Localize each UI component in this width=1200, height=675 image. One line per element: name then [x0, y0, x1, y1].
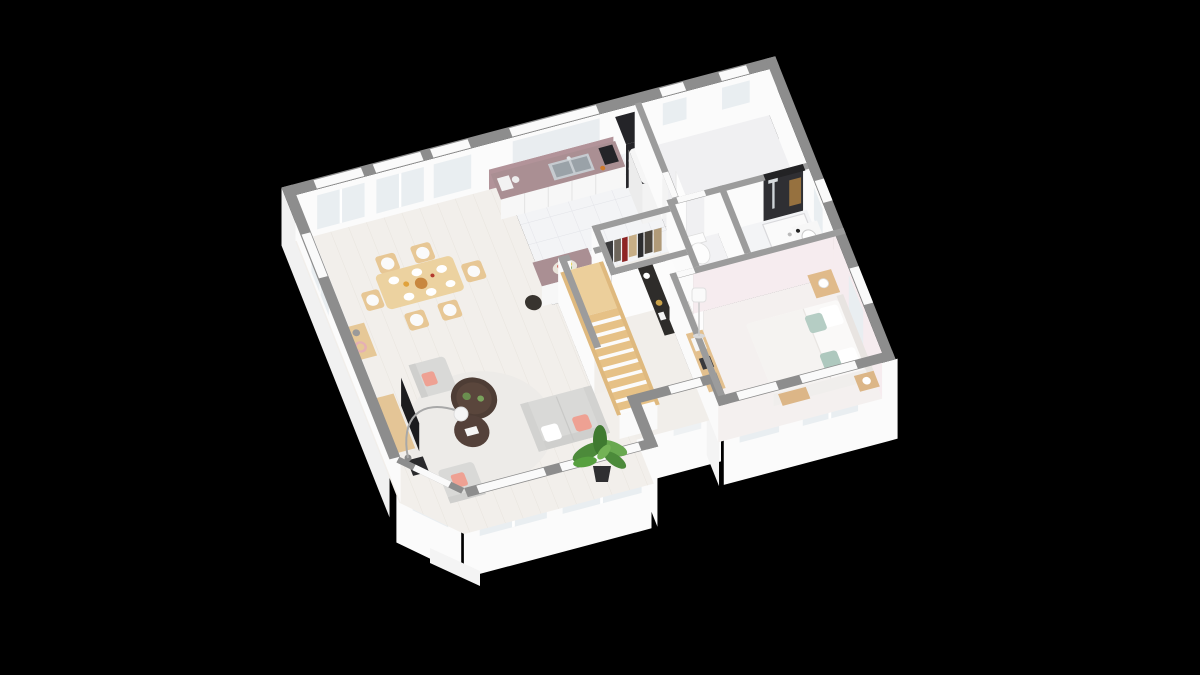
- plant-pot: [593, 466, 611, 482]
- shower-bar: [772, 178, 774, 209]
- floor-plan-render: [0, 0, 1200, 675]
- floor-plan-stage: [0, 0, 1200, 675]
- shower-caddy: [789, 177, 801, 206]
- lamp-shade: [692, 288, 706, 302]
- window-mullion: [399, 173, 401, 208]
- lamp-shade: [454, 407, 468, 421]
- window-mullion: [340, 189, 342, 224]
